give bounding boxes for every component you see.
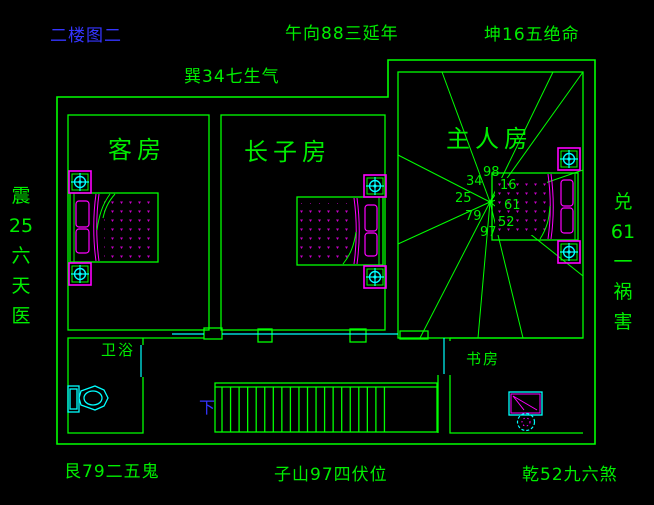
star-center-point [488, 200, 492, 204]
room-label-study: 书房 [466, 352, 500, 367]
star-number-se: 52 [498, 216, 515, 229]
pillow [76, 229, 89, 253]
compass-label-kun: 坤16五绝命 [484, 27, 580, 44]
floorplan-drawing [0, 0, 654, 505]
compass-label-wu: 午向88三延年 [285, 26, 399, 43]
stair-treads [222, 387, 384, 432]
pillow [76, 201, 89, 227]
compass-label-xun: 巽34七生气 [184, 69, 280, 86]
lamp-icon [69, 263, 91, 285]
bed-guest-room [70, 193, 158, 262]
compass-label-dui: 兑 61 一 祸 害 [609, 193, 637, 332]
drawing-title: 二楼图二 [50, 28, 122, 45]
lamp-icon [364, 266, 386, 288]
staircase [215, 383, 437, 432]
room-label-eldest-son: 长子房 [244, 140, 331, 164]
toilet-symbol [68, 386, 108, 412]
star-number-nw: 34 [466, 175, 483, 188]
pillow [365, 205, 377, 231]
star-number-sw: 79 [465, 210, 482, 223]
room-label-guest: 客房 [108, 138, 166, 162]
study-outline [438, 338, 583, 433]
compass-label-qian: 乾52九六煞 [522, 467, 618, 484]
lamp-icon [558, 148, 580, 170]
room-label-master: 主人房 [446, 127, 533, 151]
cad-floorplan-view: 二楼图二 巽34七生气 午向88三延年 坤16五绝命 震 25 六 天 医 兑 … [0, 0, 654, 505]
compass-label-gen: 艮79二五鬼 [64, 464, 160, 481]
pillow [365, 233, 377, 256]
door-openings [141, 334, 444, 377]
lamp-icon [558, 241, 580, 263]
pillow [561, 180, 573, 206]
star-number-ne: 16 [500, 179, 517, 192]
star-number-n: 98 [483, 166, 500, 179]
stool-symbol [518, 414, 535, 431]
compass-label-zishan: 子山97四伏位 [274, 467, 388, 484]
mattress-dots [300, 203, 352, 259]
lamp-icon [69, 171, 91, 193]
room-label-bathroom: 卫浴 [101, 343, 135, 358]
star-number-w: 25 [455, 192, 472, 205]
star-number-s: 97 [480, 226, 497, 239]
compass-label-zhen: 震 25 六 天 医 [7, 187, 35, 326]
star-number-e: 61 [504, 199, 521, 212]
desk-symbol [509, 392, 542, 415]
mattress-dots [104, 200, 156, 258]
fengshui-star-rays [398, 72, 583, 338]
pillow [561, 208, 573, 233]
lamp-icon [364, 175, 386, 197]
stairs-down-label: 下 [199, 400, 215, 416]
bed-eldest-son-room [297, 197, 383, 265]
